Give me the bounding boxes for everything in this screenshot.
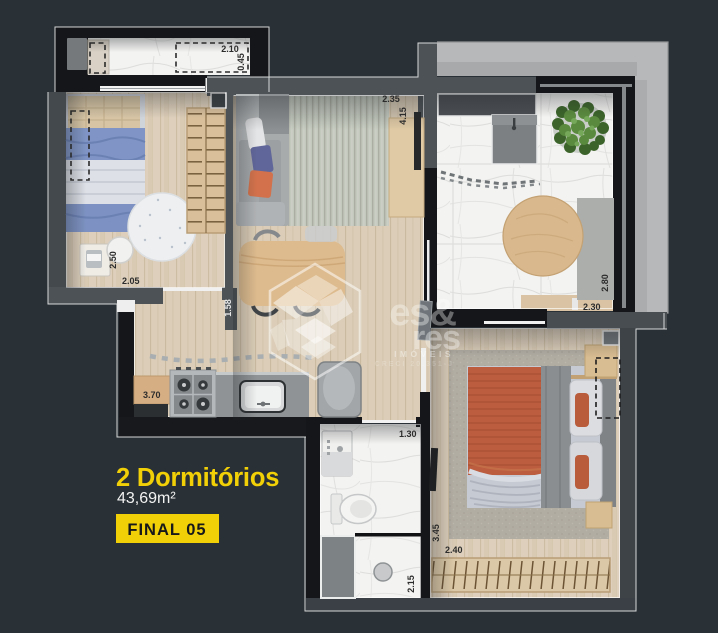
- svg-text:2 Dormitórios: 2 Dormitórios: [116, 464, 279, 492]
- svg-text:FINAL 05: FINAL 05: [127, 521, 206, 539]
- svg-text:4.15: 4.15: [398, 107, 408, 125]
- svg-text:3.45: 3.45: [431, 524, 441, 542]
- svg-text:43,69m²: 43,69m²: [117, 490, 176, 507]
- svg-text:2.80: 2.80: [600, 274, 610, 292]
- svg-text:1.58: 1.58: [223, 299, 233, 317]
- svg-text:2.50: 2.50: [108, 251, 118, 269]
- svg-text:2.15: 2.15: [406, 575, 416, 593]
- svg-text:3.70: 3.70: [143, 390, 161, 400]
- svg-text:2.40: 2.40: [445, 545, 463, 555]
- svg-text:2.05: 2.05: [122, 276, 140, 286]
- svg-text:IMÓVEIS: IMÓVEIS: [394, 348, 454, 359]
- svg-text:2.35: 2.35: [382, 94, 400, 104]
- svg-text:2.30: 2.30: [583, 302, 601, 312]
- svg-text:CRECI 20.351-J: CRECI 20.351-J: [375, 361, 454, 368]
- svg-text:1.30: 1.30: [399, 429, 417, 439]
- svg-text:0.45: 0.45: [236, 53, 246, 71]
- svg-text:2.10: 2.10: [221, 44, 239, 54]
